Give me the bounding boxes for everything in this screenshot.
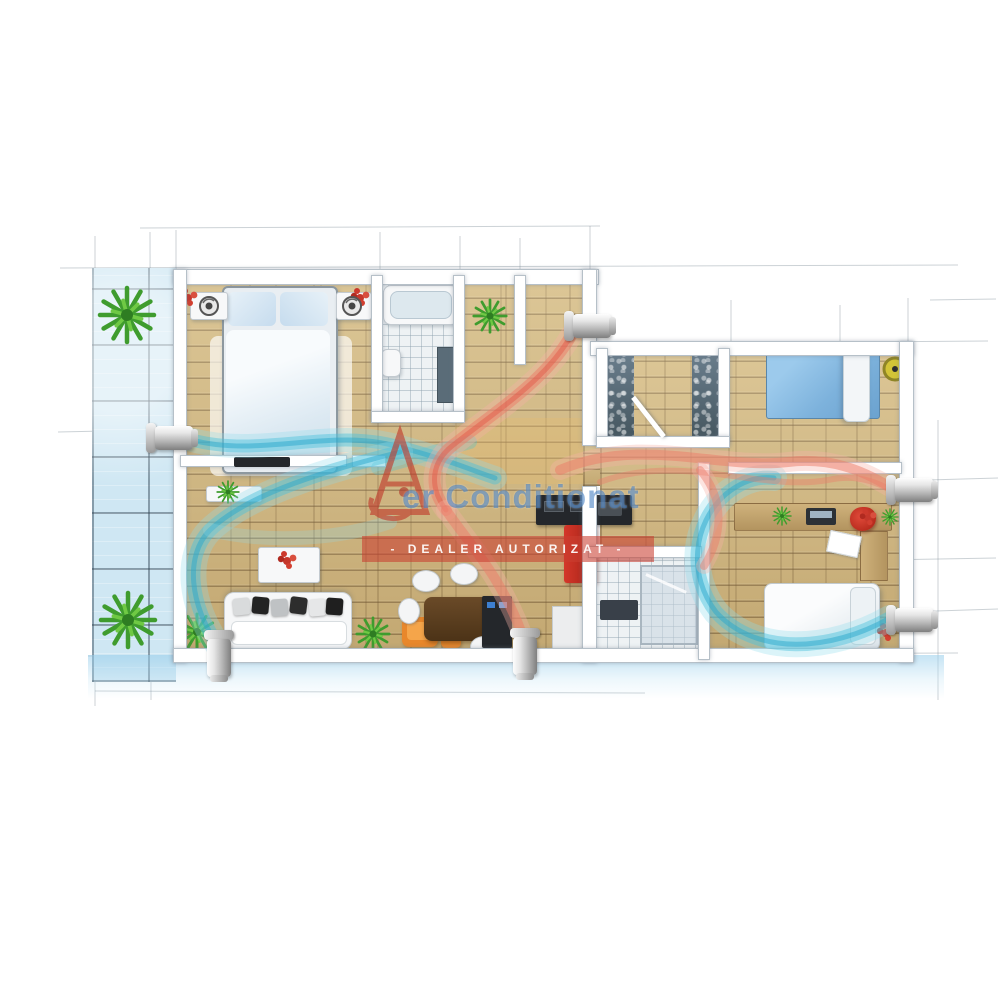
dealer-badge-text: - DEALER AUTORIZAT - <box>390 542 625 556</box>
ac-diffuser-bottom-left <box>204 630 234 682</box>
console-plant <box>217 481 239 503</box>
desk-plant-right <box>882 509 898 525</box>
ac-diffuser-top-wall <box>564 311 616 341</box>
flowers-desk <box>860 509 877 525</box>
entry-plant <box>474 300 506 332</box>
wall-outer-bottom <box>173 648 914 663</box>
wall-closet-left <box>596 348 608 444</box>
dealer-badge: - DEALER AUTORIZAT - <box>362 536 654 562</box>
ac-diffuser-left-wall <box>146 423 198 453</box>
fan-nightstand-right <box>343 297 361 315</box>
wall-bedroom3-left <box>698 462 710 660</box>
wall-middle-upper <box>582 269 597 446</box>
terrace-plant-top <box>100 288 154 342</box>
wall-outer-top-left <box>173 269 599 285</box>
ac-diffuser-right-lower <box>886 605 938 635</box>
living-plant-right <box>357 618 389 650</box>
flowers-coffee-table <box>278 551 297 569</box>
wall-bathroom1-bottom <box>371 411 465 423</box>
wall-bathroom1-right <box>453 275 465 423</box>
wall-bedroom2-bottom <box>728 462 902 474</box>
fan-nightstand-left <box>200 297 218 315</box>
desk-plant-left <box>773 507 791 525</box>
wall-bathroom1-left <box>371 275 383 423</box>
tv-console <box>234 457 290 467</box>
ac-diffuser-right-upper <box>886 475 938 505</box>
brand-watermark-text: er Conditionat <box>402 478 682 516</box>
wall-closet-bottom <box>596 436 730 448</box>
terrace-plant-bottom <box>101 593 155 647</box>
wall-closet-right <box>718 348 730 444</box>
floorplan-canvas: er Conditionat - DEALER AUTORIZAT - <box>0 0 1000 1000</box>
wall-outer-top-right <box>590 341 914 356</box>
ac-diffuser-bottom-middle <box>510 628 540 680</box>
wall-entry-right <box>514 275 526 365</box>
